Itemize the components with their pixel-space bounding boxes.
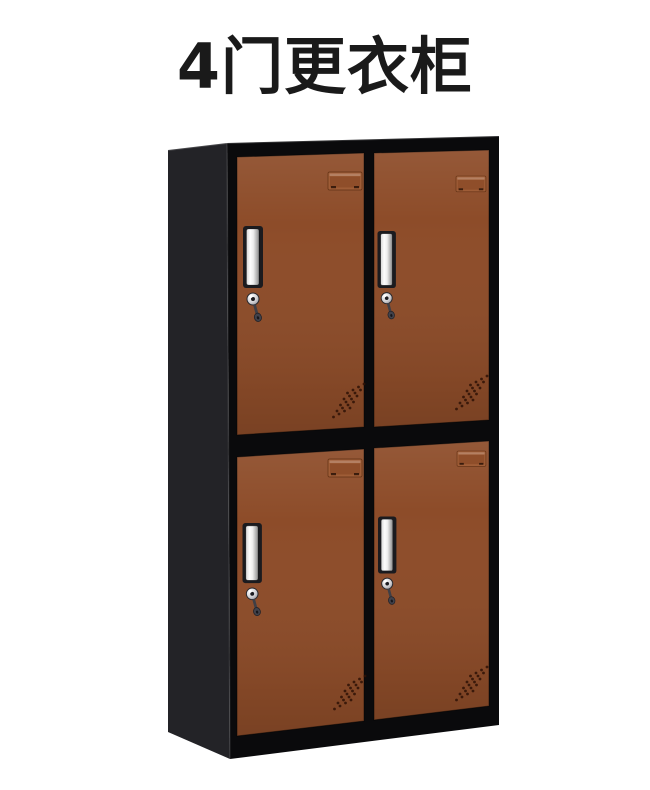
cabinet-side-panel [168, 143, 230, 759]
locker-door-top-right [374, 150, 489, 427]
door-label-slot [328, 459, 362, 477]
door-label-slot [456, 176, 486, 192]
locker-door-top-left [237, 153, 365, 435]
locker-door-bottom-right [374, 441, 489, 720]
locker-door-bottom-left [237, 449, 366, 736]
locker-cabinet-illustration [0, 0, 650, 790]
product-image-canvas: 4门更衣柜 [0, 0, 650, 790]
door-label-slot [328, 172, 362, 190]
door-label-slot [457, 451, 486, 466]
